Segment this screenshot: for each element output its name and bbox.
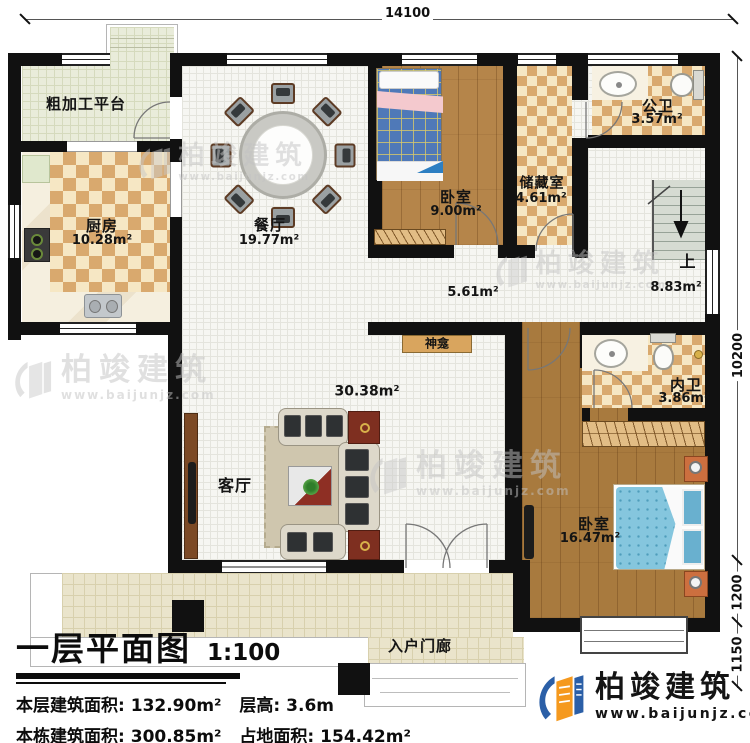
wall [505, 322, 522, 566]
wall [572, 66, 588, 100]
footprint-value: 154.42m² [320, 727, 411, 743]
wall [170, 53, 182, 97]
window [227, 53, 327, 66]
window [60, 322, 136, 335]
wall [503, 66, 517, 258]
shrine-label: 神龛 [425, 337, 449, 350]
wall [705, 53, 720, 632]
height-label: 层高: [239, 696, 280, 716]
brand-logo: 柏竣建筑 www.baijunjz.com [533, 666, 750, 726]
wall [8, 141, 67, 152]
stove-symbol [24, 228, 50, 262]
brand-url: www.baijunjz.com [595, 706, 750, 722]
wall [368, 245, 454, 258]
window [402, 53, 477, 66]
side-table-symbol [348, 411, 380, 444]
toilet-symbol [670, 73, 694, 97]
title-block: 一层平面图 1:100 本层建筑面积: 132.90m² 层高: 3.6m 本栋… [16, 622, 446, 743]
window [518, 53, 556, 66]
side-table-symbol [348, 530, 380, 560]
window [62, 53, 110, 66]
wall [327, 53, 402, 66]
room-label-platform: 粗加工平台 [46, 96, 126, 113]
toilet-tank [650, 333, 676, 343]
floor-storage [517, 66, 572, 245]
kitchen-sink-symbol [84, 294, 122, 318]
room-label-storage: 储藏室 [520, 176, 565, 191]
tv-icon [188, 462, 196, 524]
stairs-up-label: 上 [679, 253, 696, 271]
floor-plan: 粗加工平台 厨房 10.28m² 餐厅 19.77m² 卧室 9.00m² 储藏… [0, 0, 750, 743]
wall [628, 408, 705, 421]
room-label-kitchen: 厨房 [86, 218, 118, 235]
wall [582, 322, 705, 335]
pillow [682, 489, 703, 526]
bay-window-line [584, 630, 684, 631]
plant-icon [303, 479, 319, 495]
wall [170, 139, 182, 162]
wall [522, 618, 580, 632]
room-area-storage: 4.61m² [515, 192, 566, 206]
bed-symbol [613, 484, 705, 570]
stairs-treads [652, 180, 705, 260]
brand-name: 柏竣建筑 [595, 671, 750, 704]
sofa-symbol [278, 408, 348, 446]
window [705, 250, 720, 314]
hallway-area: 5.61m² [447, 286, 498, 300]
living-area: 30.38m² [334, 384, 399, 399]
cutting-board [22, 155, 50, 183]
platform-step-line [110, 38, 174, 39]
wall [368, 322, 522, 335]
room-label-bedroom-small: 卧室 [440, 189, 472, 206]
building-area-value: 300.85m² [131, 727, 222, 743]
floor-area-label: 本层建筑面积: [16, 696, 125, 716]
opening [170, 162, 182, 217]
bay-window-line [584, 641, 684, 642]
window [222, 560, 326, 574]
toilet-tank [693, 70, 704, 100]
footprint-label: 占地面积: [239, 727, 314, 743]
bay-window [580, 616, 688, 654]
chair-icon [271, 83, 295, 104]
sofa-symbol [280, 524, 346, 560]
nightstand-symbol [684, 456, 708, 482]
sink-symbol [599, 71, 637, 97]
chair-icon [335, 144, 356, 168]
building-area-label: 本栋建筑面积: [16, 727, 125, 743]
wall [477, 53, 518, 66]
wall [588, 135, 705, 148]
platform-step-line [110, 47, 174, 48]
drawing-scale: 1:100 [207, 640, 280, 666]
room-area-kitchen: 10.28m² [72, 234, 132, 248]
room-label-living: 客厅 [218, 477, 252, 495]
toilet-symbol [653, 344, 674, 370]
light-icon [694, 350, 703, 359]
room-area-master: 16.47m² [560, 532, 620, 546]
bed-symbol [376, 68, 442, 180]
room-area-dining: 19.77m² [239, 234, 299, 248]
room-label-dining: 餐厅 [254, 217, 286, 234]
page-title: 一层平面图 [16, 622, 191, 670]
pillow [682, 529, 703, 565]
wall [556, 53, 588, 66]
brand-logo-icon [533, 666, 587, 726]
room-area-inner-bath: 3.86m² [658, 392, 709, 406]
wall [168, 560, 222, 574]
sofa-symbol [338, 442, 380, 532]
dim-top-value: 14100 [382, 6, 433, 21]
height-value: 3.6m [286, 696, 334, 716]
pillow [379, 71, 439, 89]
wall [572, 138, 588, 257]
wall [8, 53, 21, 340]
floor-gap-grid [182, 322, 368, 335]
dim-line-top [25, 19, 733, 20]
wall [168, 335, 182, 560]
wall [503, 245, 535, 258]
dim-right-upper: 10200 [731, 330, 746, 381]
room-label-master: 卧室 [578, 516, 610, 533]
stairs-area: 8.83m² [650, 281, 701, 295]
platform-steps [110, 27, 174, 58]
chair-icon [211, 144, 232, 168]
wall [582, 408, 590, 421]
wardrobe-symbol [582, 421, 705, 447]
opening [67, 141, 137, 152]
closet-symbol [374, 229, 446, 245]
title-underline [16, 673, 240, 679]
room-area-bedroom-small: 9.00m² [430, 205, 481, 219]
room-area-public-bath: 3.57m² [631, 113, 682, 127]
wall [326, 560, 404, 574]
wall [170, 217, 182, 335]
dim-right-mid: 1200 [731, 571, 746, 613]
sink-symbol [594, 339, 628, 368]
tv-icon [524, 505, 534, 559]
nightstand-symbol [684, 571, 708, 597]
watermark-logo-icon [10, 352, 54, 404]
window [8, 205, 21, 258]
blanket [377, 91, 443, 113]
dining-table-top [253, 125, 313, 185]
floor-area-value: 132.90m² [131, 696, 222, 716]
window [588, 53, 678, 66]
title-underline-thin [16, 682, 226, 684]
